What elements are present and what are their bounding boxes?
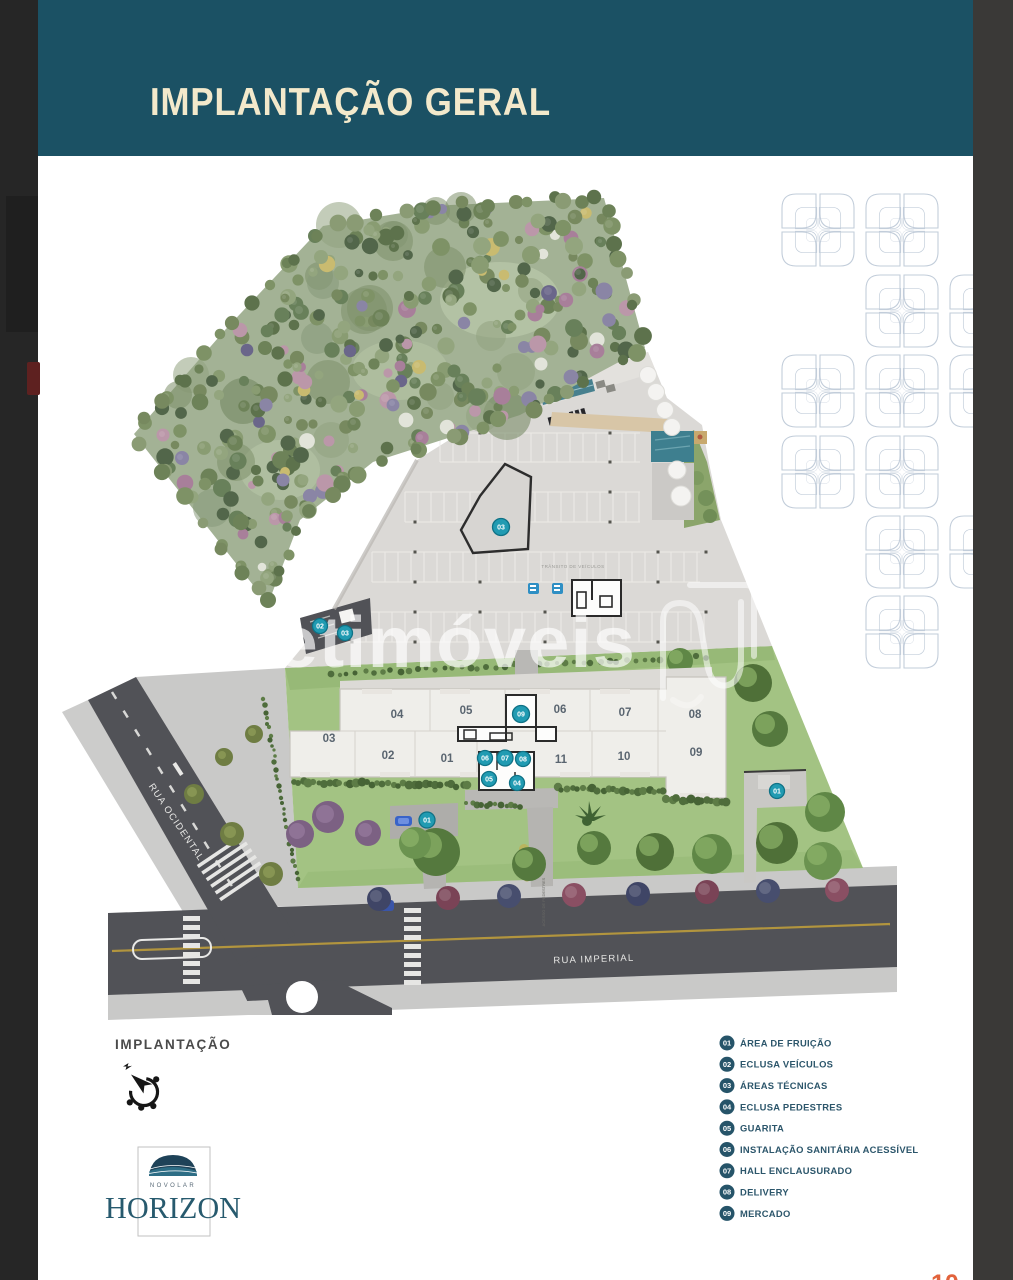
svg-text:ÁREAS TÉCNICAS: ÁREAS TÉCNICAS: [740, 1080, 828, 1091]
svg-text:05: 05: [723, 1124, 731, 1133]
svg-text:08: 08: [519, 757, 527, 764]
svg-text:04: 04: [723, 1103, 732, 1112]
svg-text:04: 04: [513, 781, 521, 788]
svg-text:07: 07: [619, 707, 632, 719]
svg-text:HORIZON: HORIZON: [105, 1190, 241, 1225]
svg-text:GUARITA: GUARITA: [740, 1123, 784, 1134]
svg-text:06: 06: [481, 756, 489, 763]
svg-text:01: 01: [773, 789, 781, 796]
svg-text:05: 05: [460, 705, 473, 717]
svg-text:ÁREA DE FRUIÇÃO: ÁREA DE FRUIÇÃO: [740, 1037, 832, 1048]
svg-text:02: 02: [723, 1060, 731, 1069]
svg-text:09: 09: [723, 1209, 731, 1218]
svg-text:07: 07: [723, 1166, 731, 1175]
svg-text:IMPLANTAÇÃO: IMPLANTAÇÃO: [115, 1037, 231, 1052]
svg-text:02: 02: [316, 624, 324, 631]
svg-text:09: 09: [517, 712, 525, 719]
svg-text:06: 06: [554, 704, 567, 716]
svg-text:01: 01: [723, 1039, 731, 1048]
svg-text:01: 01: [423, 818, 431, 825]
svg-text:IMPLANTAÇÃO GERAL: IMPLANTAÇÃO GERAL: [150, 80, 551, 124]
svg-text:netimóveis: netimóveis: [228, 603, 636, 683]
svg-text:INSTALAÇÃO SANITÁRIA ACESSÍVEL: INSTALAÇÃO SANITÁRIA ACESSÍVEL: [740, 1144, 918, 1155]
svg-text:06: 06: [723, 1145, 731, 1154]
svg-text:08: 08: [723, 1188, 731, 1197]
svg-text:HALL ENCLAUSURADO: HALL ENCLAUSURADO: [740, 1165, 852, 1176]
svg-text:07: 07: [501, 756, 509, 763]
svg-text:10: 10: [931, 1270, 959, 1280]
svg-text:NOVOLAR: NOVOLAR: [150, 1183, 196, 1189]
svg-text:TRÂNSITO DE VEÍCULOS: TRÂNSITO DE VEÍCULOS: [541, 563, 604, 569]
svg-text:05: 05: [485, 777, 493, 784]
svg-text:03: 03: [497, 525, 505, 532]
svg-text:ACESSO DE PEDESTRES: ACESSO DE PEDESTRES: [541, 877, 546, 926]
svg-text:ECLUSA PEDESTRES: ECLUSA PEDESTRES: [740, 1101, 842, 1112]
svg-text:MERCADO: MERCADO: [740, 1208, 791, 1219]
svg-text:03: 03: [723, 1081, 731, 1090]
svg-text:04: 04: [391, 709, 404, 721]
svg-text:01: 01: [441, 753, 454, 765]
svg-text:02: 02: [382, 750, 395, 762]
svg-text:11: 11: [555, 754, 568, 766]
svg-text:09: 09: [690, 747, 703, 759]
svg-text:03: 03: [323, 733, 336, 745]
svg-text:10: 10: [618, 751, 631, 763]
svg-text:08: 08: [689, 709, 702, 721]
svg-text:DELIVERY: DELIVERY: [740, 1187, 789, 1198]
svg-text:ECLUSA VEÍCULOS: ECLUSA VEÍCULOS: [740, 1059, 833, 1070]
svg-text:03: 03: [341, 631, 349, 638]
